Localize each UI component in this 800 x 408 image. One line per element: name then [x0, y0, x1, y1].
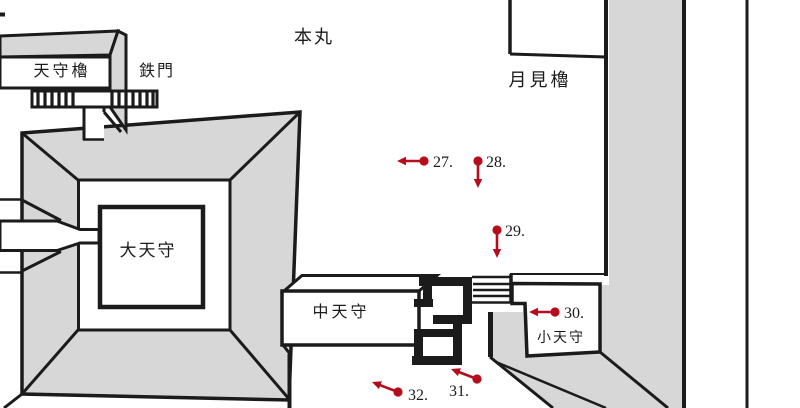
label-honmaru: 本丸 — [294, 27, 334, 48]
marker-dot[interactable] — [393, 387, 402, 396]
label-tsukimi-yagura: 月見櫓 — [509, 70, 572, 91]
label-daitenshu: 大天守 — [120, 241, 177, 261]
gate-walkway — [32, 91, 157, 107]
marker-label: 29. — [505, 223, 525, 240]
marker-dot[interactable] — [492, 225, 501, 234]
marker-label: 32. — [408, 387, 428, 404]
marker-dot[interactable] — [473, 156, 482, 165]
marker-label: 30. — [564, 305, 584, 322]
castle-map: 本丸 天守櫓 鉄門 月見櫓 大天守 中天守 小天守 27.28.29.30.31… — [0, 0, 800, 408]
north-corridor-fill — [85, 106, 104, 140]
castle-map-svg: 本丸 天守櫓 鉄門 月見櫓 大天守 中天守 小天守 27.28.29.30.31… — [0, 0, 800, 408]
marker-label: 31. — [449, 383, 469, 400]
label-chutenshu: 中天守 — [312, 302, 369, 321]
label-tetsumon: 鉄門 — [139, 61, 175, 80]
tenshu-yagura-roof — [0, 31, 118, 57]
marker-dot[interactable] — [419, 156, 428, 165]
marker-dot[interactable] — [472, 374, 481, 383]
marker-label: 27. — [433, 154, 453, 171]
chutenshu-roof — [284, 276, 437, 292]
marker-label: 28. — [486, 154, 506, 171]
label-tenshu-yagura: 天守櫓 — [33, 61, 90, 80]
edge-wall-tick — [0, 13, 5, 17]
label-kotenshu: 小天守 — [537, 330, 585, 346]
marker-dot[interactable] — [550, 307, 559, 316]
